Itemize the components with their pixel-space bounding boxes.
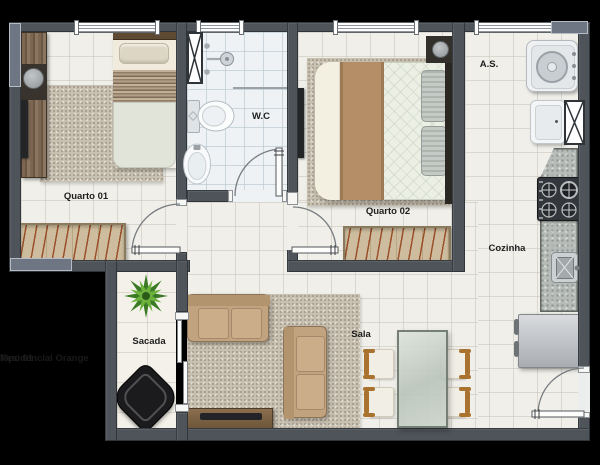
shower-icon [204, 43, 233, 75]
floor-plan: Quarto 01 W.C Quarto 02 A.S. Cozinha Sal… [0, 0, 600, 465]
pedestal-sink-icon [184, 144, 211, 184]
door-quarto-02 [292, 207, 338, 255]
stove-burners [542, 182, 577, 217]
plant-icon [124, 274, 168, 318]
plan-overlay [0, 0, 600, 465]
room-label-wc: W.C [252, 112, 270, 122]
room-label-quarto-02: Quarto 02 [366, 207, 410, 217]
shaft-hatch-wc [188, 34, 201, 82]
room-label-as: A.S. [480, 60, 498, 70]
toilet-icon [189, 101, 234, 131]
room-label-cozinha: Cozinha [489, 244, 526, 254]
room-label-quarto-01: Quarto 01 [64, 192, 108, 202]
room-label-sacada: Sacada [132, 337, 165, 347]
kitchen-sink-detail [556, 257, 580, 278]
door-entry [532, 368, 584, 419]
door-wc [235, 148, 284, 196]
shaft-hatch-as [566, 102, 583, 143]
watermark-line2: Tipo 01 [0, 352, 33, 367]
room-label-sala: Sala [351, 330, 371, 340]
door-quarto-01 [132, 204, 180, 255]
